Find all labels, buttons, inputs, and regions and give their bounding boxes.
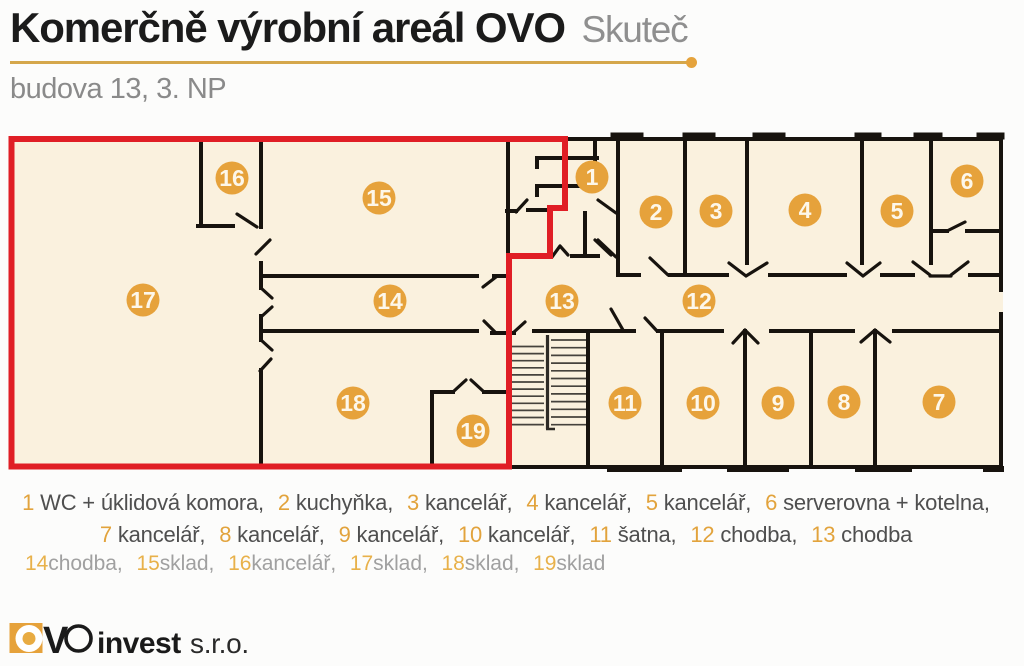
svg-text:5: 5 (891, 198, 904, 224)
svg-text:2: 2 (650, 199, 663, 225)
svg-text:11: 11 (613, 390, 638, 416)
svg-text:19: 19 (460, 418, 486, 444)
svg-text:17: 17 (130, 287, 156, 313)
svg-text:6: 6 (961, 168, 974, 194)
svg-text:1: 1 (586, 164, 599, 190)
svg-text:9: 9 (772, 390, 785, 416)
svg-text:4: 4 (799, 197, 812, 223)
svg-text:10: 10 (690, 390, 716, 416)
svg-text:8: 8 (838, 389, 851, 415)
svg-text:7: 7 (933, 389, 946, 415)
svg-text:s.r.o.: s.r.o. (190, 628, 249, 659)
svg-text:15: 15 (366, 185, 392, 211)
svg-text:14: 14 (377, 288, 403, 314)
svg-text:invest: invest (97, 627, 181, 660)
svg-text:18: 18 (340, 390, 366, 416)
svg-text:13: 13 (549, 288, 575, 314)
svg-text:12: 12 (686, 288, 712, 314)
svg-text:16: 16 (219, 165, 245, 191)
svg-text:3: 3 (710, 198, 723, 224)
